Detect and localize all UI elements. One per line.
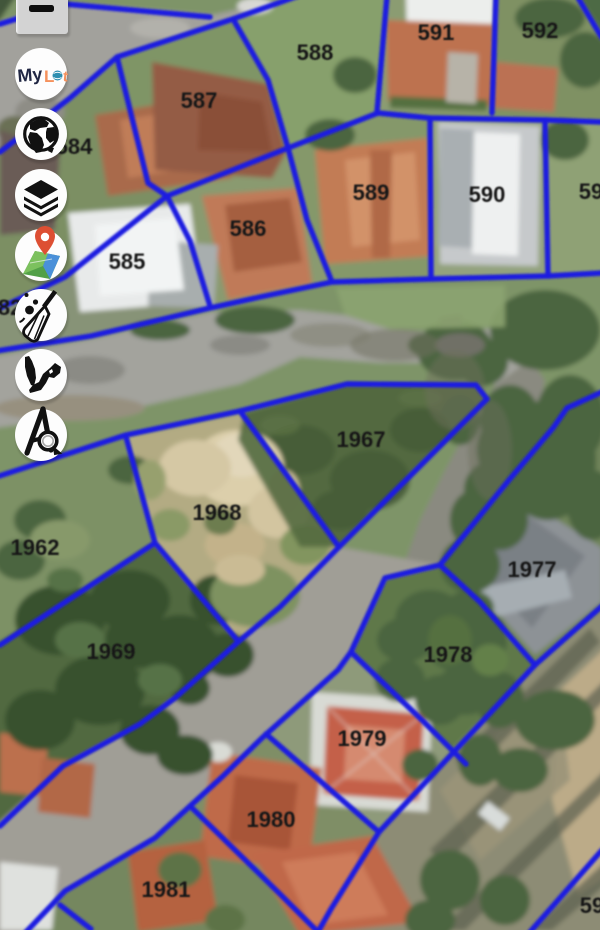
svg-text:My: My <box>17 64 44 86</box>
svg-text:592: 592 <box>522 18 559 43</box>
svg-text:588: 588 <box>297 40 334 65</box>
svg-text:587: 587 <box>181 88 218 113</box>
svg-text:1977: 1977 <box>508 557 557 582</box>
svg-text:1979: 1979 <box>338 726 387 751</box>
svg-text:1968: 1968 <box>193 500 242 525</box>
svg-text:586: 586 <box>230 216 267 241</box>
svg-text:59: 59 <box>580 893 600 918</box>
svg-text:1978: 1978 <box>424 642 473 667</box>
svg-text:1981: 1981 <box>142 877 191 902</box>
svg-text:1980: 1980 <box>247 807 296 832</box>
svg-text:589: 589 <box>353 180 390 205</box>
svg-text:591: 591 <box>418 20 455 45</box>
svg-text:1962: 1962 <box>11 535 60 560</box>
svg-text:1967: 1967 <box>337 427 386 452</box>
svg-text:1969: 1969 <box>87 639 136 664</box>
svg-text:585: 585 <box>109 249 146 274</box>
svg-text:590: 590 <box>469 182 506 207</box>
svg-text:59: 59 <box>579 179 600 204</box>
